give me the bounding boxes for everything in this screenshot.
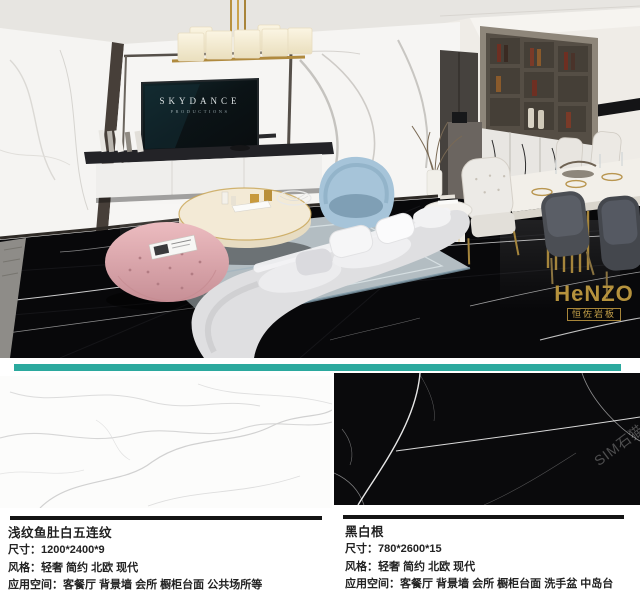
left-marble-wall [0,28,124,240]
interior-render: SKYDANCE PRODUCTIONS HeNZO 恒佐岩板 [0,0,640,358]
product-name: 黑白根 [345,524,637,541]
black-marble-swatch: SIM石猫 [334,373,640,505]
right-underline-rule [343,515,624,519]
product-application: 应用空间：客餐厅 背景墙 会所 橱柜台面 洗手盆 中岛台 [345,576,637,594]
product-spec-white-marble: 浅纹鱼肚白五连纹 尺寸：1200*2400*9 风格：轻奢 简约 北欧 现代 应… [8,525,323,595]
tv [142,79,258,151]
product-spec-black-marble: 黑白根 尺寸：780*2600*15 风格：轻奢 简约 北欧 现代 应用空间：客… [345,524,637,594]
brand-logo: HeNZO 恒佐岩板 [548,283,640,321]
brand-logo-text: HeNZO [548,283,640,305]
product-size: 尺寸：1200*2400*9 [8,542,323,560]
product-name: 浅纹鱼肚白五连纹 [8,525,323,542]
interior-render-art [0,0,640,358]
white-marble-veins [0,376,332,508]
white-marble-swatch [0,376,332,508]
product-style: 风格：轻奢 简约 北欧 现代 [8,560,323,578]
left-underline-rule [10,516,322,520]
brand-logo-subtitle: 恒佐岩板 [567,308,621,321]
black-marble-veins [334,373,640,505]
tile-product-poster: SKYDANCE PRODUCTIONS HeNZO 恒佐岩板 [0,0,640,596]
product-application: 应用空间：客餐厅 背景墙 会所 橱柜台面 公共场所等 [8,577,323,595]
teal-divider-bar [14,364,621,371]
product-style: 风格：轻奢 简约 北欧 现代 [345,559,637,577]
product-size: 尺寸：780*2600*15 [345,541,637,559]
blue-armchair [319,157,394,229]
